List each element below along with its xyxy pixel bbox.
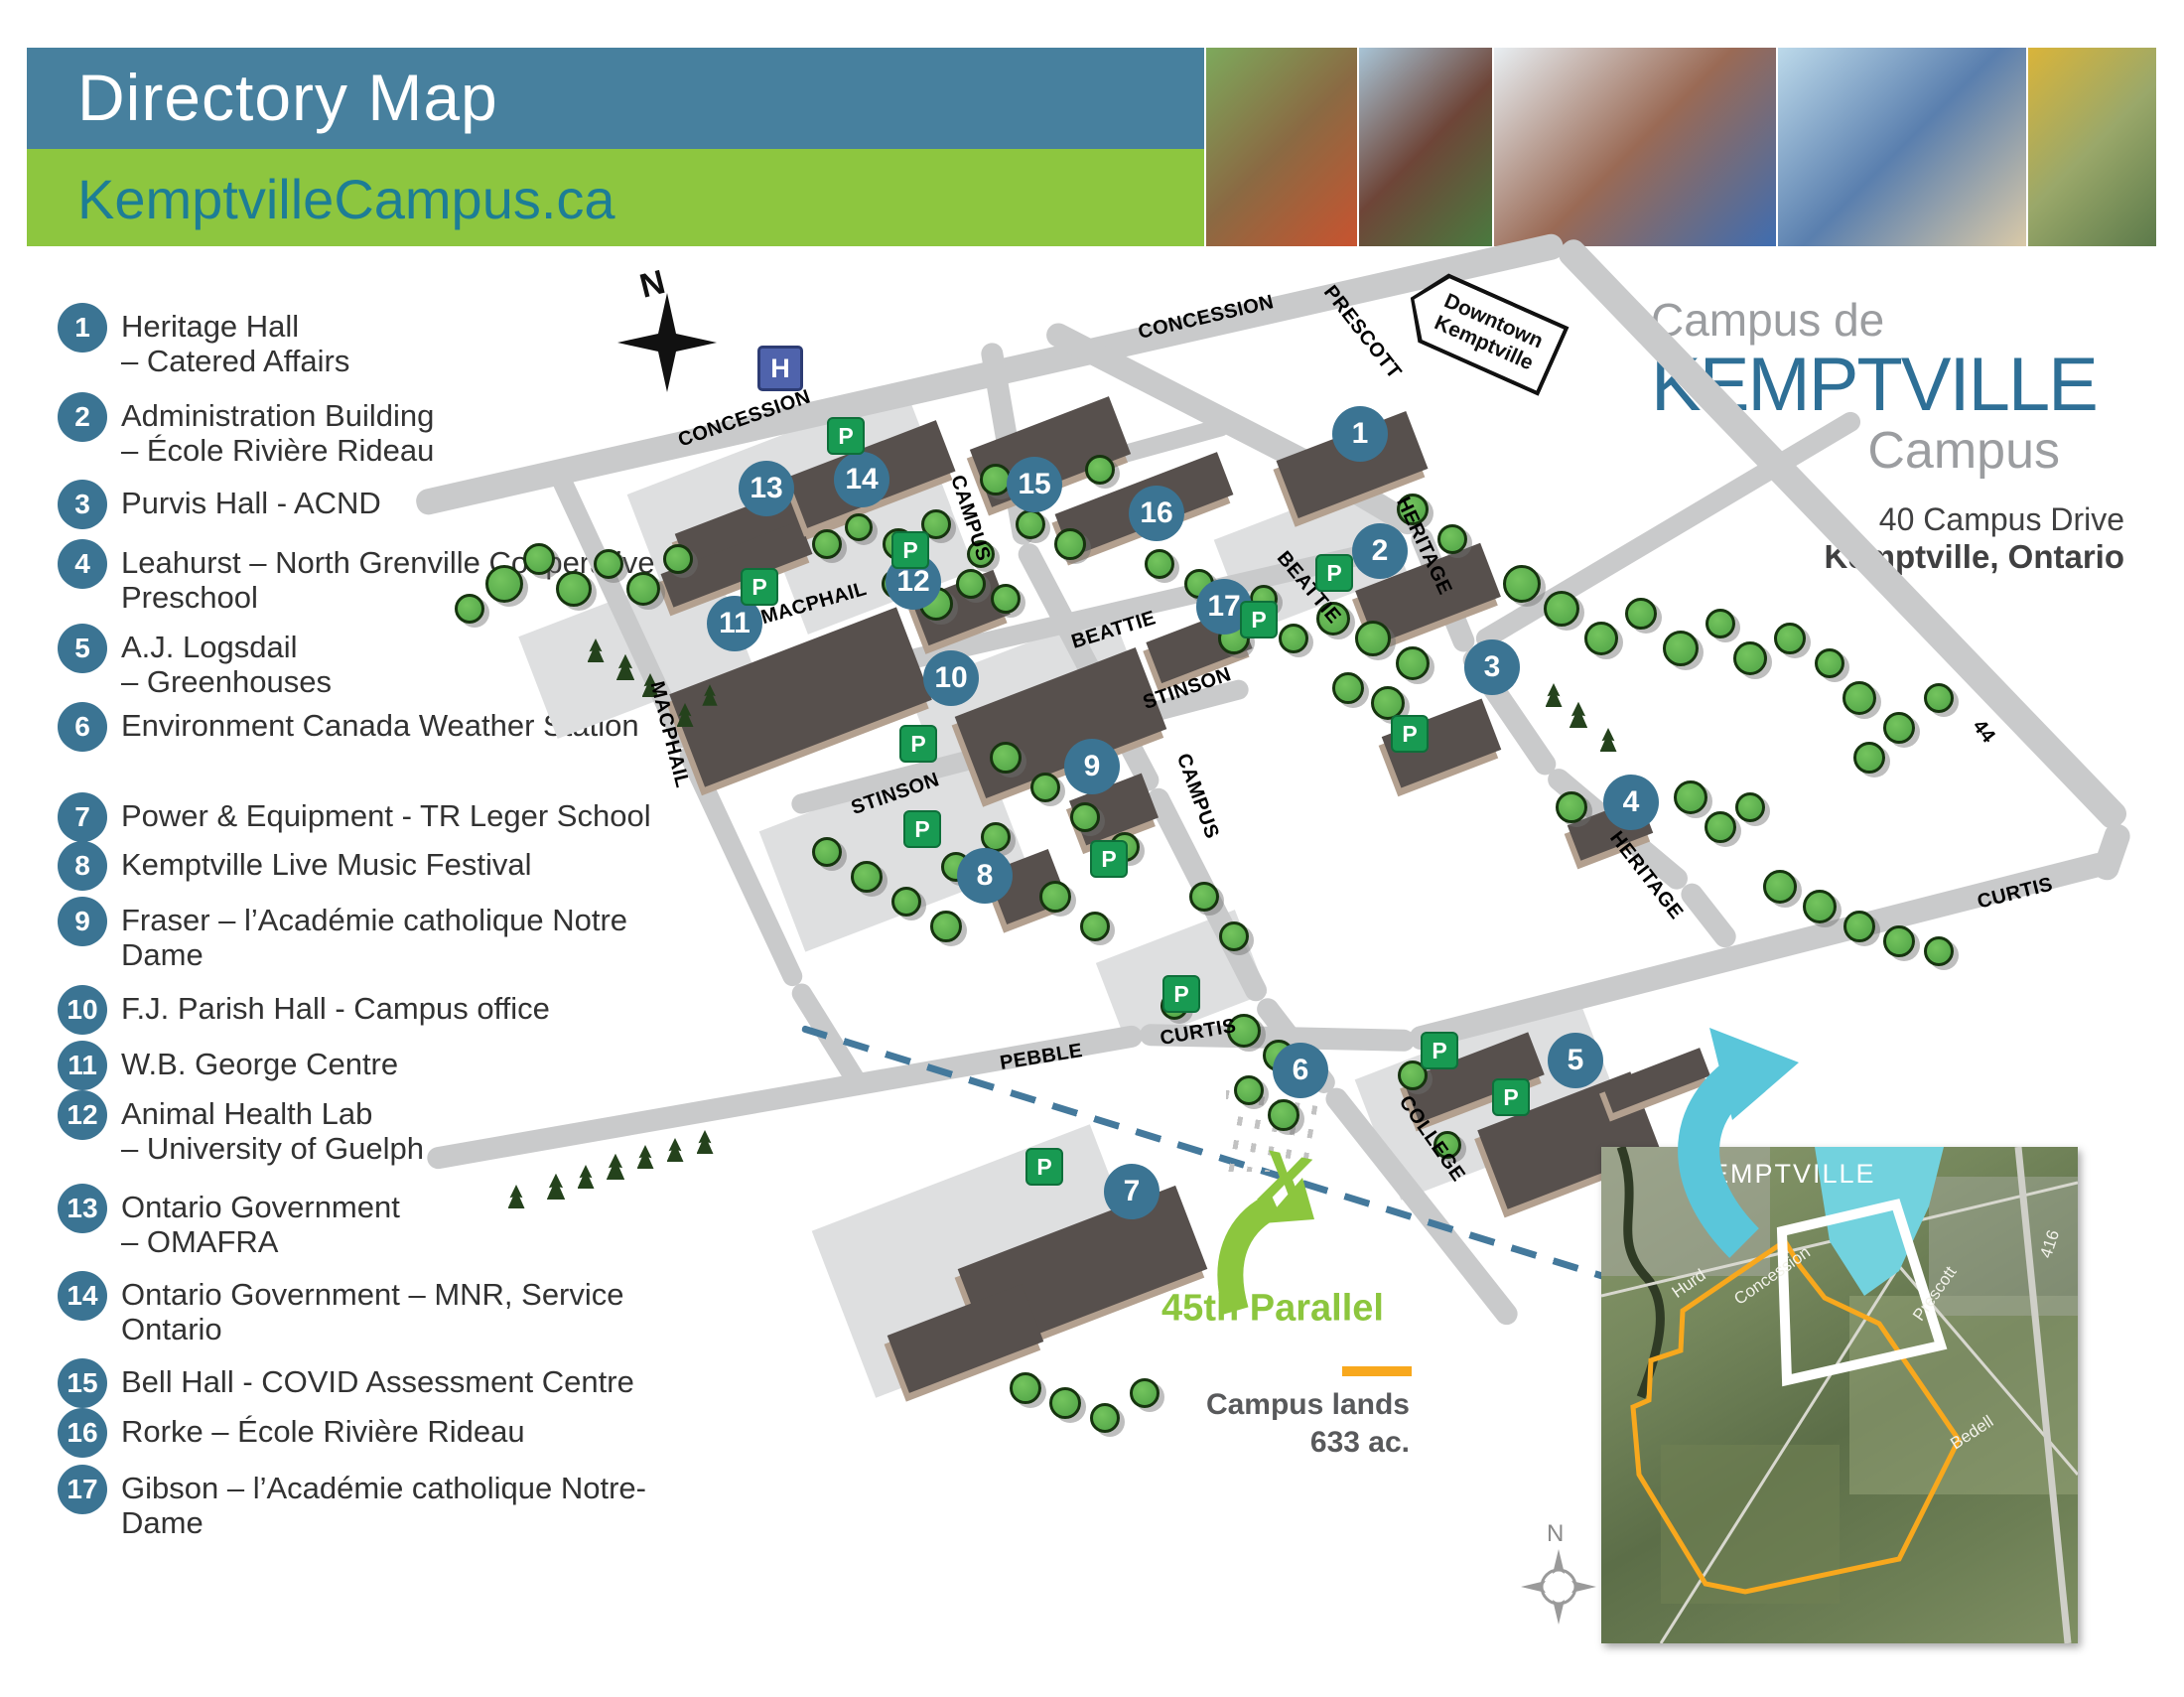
legend-item-8: 8Kemptville Live Music Festival bbox=[58, 841, 531, 891]
inset-compass: N bbox=[1521, 1520, 1596, 1625]
tree-icon bbox=[1080, 912, 1110, 941]
map-marker-2: 2 bbox=[1352, 523, 1408, 579]
pine-tree-icon bbox=[607, 1154, 625, 1180]
legend-item-label: Power & Equipment - TR Leger School bbox=[121, 792, 651, 833]
map-marker-8: 8 bbox=[957, 848, 1013, 904]
campus-lands-swatch bbox=[1342, 1366, 1412, 1376]
tree-icon bbox=[1070, 802, 1100, 832]
map-marker-3: 3 bbox=[1464, 639, 1520, 695]
tree-icon bbox=[991, 584, 1021, 614]
tree-icon bbox=[1663, 631, 1699, 666]
tree-icon bbox=[1843, 911, 1875, 942]
parking-marker: P bbox=[1240, 601, 1278, 638]
legend-item-label: Heritage Hall– Catered Affairs bbox=[121, 303, 349, 378]
tree-icon bbox=[845, 513, 873, 541]
legend-item-label: Animal Health Lab– University of Guelph bbox=[121, 1090, 424, 1166]
legend-item-label: Administration Building– École Rivière R… bbox=[121, 392, 434, 468]
parking-marker: P bbox=[827, 417, 865, 455]
legend-number-badge: 14 bbox=[58, 1271, 107, 1321]
legend-item-label: Bell Hall - COVID Assessment Centre bbox=[121, 1358, 634, 1399]
tree-icon bbox=[891, 887, 921, 917]
parking-marker: P bbox=[891, 531, 929, 569]
svg-text:N: N bbox=[1547, 1520, 1564, 1547]
tree-icon bbox=[1674, 780, 1707, 814]
tree-icon bbox=[956, 569, 986, 599]
tree-icon bbox=[485, 565, 523, 603]
pine-tree-icon bbox=[578, 1165, 595, 1189]
tree-icon bbox=[1049, 1387, 1081, 1419]
tree-icon bbox=[851, 861, 883, 893]
tree-icon bbox=[1815, 648, 1844, 678]
legend-item-5: 5A.J. Logsdail– Greenhouses bbox=[58, 624, 332, 699]
campus-lands-acres: 633 ac. bbox=[1112, 1426, 1410, 1460]
legend-item-label: Gibson – l’Académie catholique Notre-Dam… bbox=[121, 1465, 646, 1540]
building bbox=[1602, 1048, 1710, 1113]
legend-item-7: 7Power & Equipment - TR Leger School bbox=[58, 792, 651, 842]
parking-marker: P bbox=[1162, 975, 1200, 1013]
legend-number-badge: 4 bbox=[58, 539, 107, 589]
tree-icon bbox=[1332, 672, 1364, 704]
legend-number-badge: 13 bbox=[58, 1184, 107, 1233]
legend-number-badge: 7 bbox=[58, 792, 107, 842]
photo-kids-planting bbox=[1206, 48, 1357, 246]
legend-item-label: Purvis Hall - ACND bbox=[121, 480, 381, 520]
legend-number-badge: 5 bbox=[58, 624, 107, 673]
tree-icon bbox=[1883, 925, 1915, 957]
photo-school-building bbox=[1359, 48, 1492, 246]
legend-item-label: Kemptville Live Music Festival bbox=[121, 841, 531, 882]
map-marker-1: 1 bbox=[1332, 406, 1388, 462]
pine-tree-icon bbox=[667, 1138, 684, 1162]
parking-marker: P bbox=[903, 810, 941, 848]
photo-student-beanie bbox=[2028, 48, 2156, 246]
legend-item-2: 2Administration Building– École Rivière … bbox=[58, 392, 434, 468]
legend-item-label: Ontario Government– OMAFRA bbox=[121, 1184, 400, 1259]
tree-icon bbox=[1279, 624, 1308, 653]
legend-item-9: 9Fraser – l’Académie catholique NotreDam… bbox=[58, 897, 627, 972]
parking-marker: P bbox=[1090, 840, 1128, 878]
tree-icon bbox=[1503, 565, 1541, 603]
parking-marker: P bbox=[741, 568, 778, 606]
pine-tree-icon bbox=[637, 1145, 654, 1169]
legend-item-label: Fraser – l’Académie catholique NotreDame bbox=[121, 897, 627, 972]
legend-number-badge: 11 bbox=[58, 1041, 107, 1090]
legend-number-badge: 2 bbox=[58, 392, 107, 442]
brand-line-3: Campus bbox=[1651, 424, 2060, 478]
road-label: 44 bbox=[1968, 716, 1999, 748]
pine-tree-icon bbox=[1546, 683, 1563, 707]
road-segment bbox=[1677, 879, 1740, 952]
tree-icon bbox=[812, 529, 842, 559]
map-marker-9: 9 bbox=[1064, 739, 1120, 794]
pine-tree-icon bbox=[1570, 702, 1588, 728]
pine-tree-icon bbox=[697, 1130, 714, 1154]
legend-item-label: F.J. Parish Hall - Campus office bbox=[121, 985, 550, 1026]
map-marker-7: 7 bbox=[1104, 1164, 1160, 1219]
address-line-1: 40 Campus Drive bbox=[1727, 501, 2124, 538]
tree-icon bbox=[1016, 509, 1045, 539]
legend-number-badge: 15 bbox=[58, 1358, 107, 1408]
tree-icon bbox=[1763, 870, 1797, 904]
parking-marker: P bbox=[1492, 1078, 1530, 1116]
map-marker-14: 14 bbox=[834, 452, 889, 507]
tree-icon bbox=[626, 572, 660, 606]
tree-icon bbox=[1853, 742, 1885, 774]
legend-item-16: 16Rorke – École Rivière Rideau bbox=[58, 1408, 525, 1458]
tree-icon bbox=[1625, 598, 1657, 630]
legend-number-badge: 16 bbox=[58, 1408, 107, 1458]
legend-item-17: 17Gibson – l’Académie catholique Notre-D… bbox=[58, 1465, 646, 1540]
pine-tree-icon bbox=[547, 1174, 566, 1200]
legend-item-12: 12Animal Health Lab– University of Guelp… bbox=[58, 1090, 424, 1166]
pine-tree-icon bbox=[1600, 728, 1617, 752]
tree-icon bbox=[1556, 791, 1587, 823]
tree-icon bbox=[812, 837, 842, 867]
tree-icon bbox=[594, 549, 623, 579]
parking-marker: P bbox=[1421, 1032, 1458, 1069]
parking-marker: P bbox=[1315, 554, 1353, 592]
map-marker-6: 6 bbox=[1273, 1043, 1328, 1098]
parking-marker: P bbox=[899, 725, 937, 763]
legend-item-label: A.J. Logsdail– Greenhouses bbox=[121, 624, 332, 699]
tree-icon bbox=[663, 544, 693, 574]
tree-icon bbox=[1030, 773, 1060, 802]
legend-number-badge: 3 bbox=[58, 480, 107, 529]
map-marker-5: 5 bbox=[1548, 1033, 1603, 1088]
tree-icon bbox=[1437, 524, 1467, 554]
tree-icon bbox=[1189, 882, 1219, 912]
tree-icon bbox=[1039, 881, 1071, 913]
address-line-2: Kemptville, Ontario bbox=[1727, 538, 2124, 576]
tree-icon bbox=[1544, 591, 1579, 627]
hospital-marker: H bbox=[757, 346, 803, 391]
road-segment bbox=[1407, 850, 2113, 1052]
legend-number-badge: 12 bbox=[58, 1090, 107, 1140]
tree-icon bbox=[1924, 683, 1954, 713]
map-marker-4: 4 bbox=[1603, 775, 1659, 830]
legend-item-10: 10F.J. Parish Hall - Campus office bbox=[58, 985, 550, 1035]
tree-icon bbox=[1396, 646, 1430, 680]
pine-tree-icon bbox=[508, 1185, 525, 1208]
tree-icon bbox=[1268, 1099, 1299, 1131]
tree-icon bbox=[1584, 622, 1618, 655]
legend-number-badge: 17 bbox=[58, 1465, 107, 1514]
tree-icon bbox=[1705, 811, 1736, 843]
tree-icon bbox=[1234, 1075, 1264, 1105]
brand-line-1: Campus de bbox=[1651, 293, 2060, 347]
campus-address: 40 Campus Drive Kemptville, Ontario bbox=[1727, 501, 2124, 576]
45th-parallel-label: 45th Parallel bbox=[1161, 1288, 1384, 1331]
tree-icon bbox=[523, 543, 555, 575]
tree-icon bbox=[990, 742, 1022, 774]
map-compass: N bbox=[617, 263, 717, 392]
tree-icon bbox=[1010, 1372, 1041, 1404]
campus-lands-label: Campus lands bbox=[1112, 1388, 1410, 1422]
directory-map-page: Directory Map KemptvilleCampus.ca Campus… bbox=[0, 0, 2184, 1697]
tree-icon bbox=[1733, 641, 1767, 675]
tree-icon bbox=[1735, 792, 1765, 822]
tree-icon bbox=[1054, 528, 1086, 560]
inset-city-label: KEMPTVILLE bbox=[1691, 1159, 1876, 1190]
tree-icon bbox=[1085, 455, 1115, 485]
map-marker-15: 15 bbox=[1007, 457, 1062, 512]
tree-icon bbox=[556, 571, 592, 607]
tree-icon bbox=[1774, 623, 1806, 654]
legend-item-label: W.B. George Centre bbox=[121, 1041, 398, 1081]
map-marker-10: 10 bbox=[923, 650, 979, 706]
legend-item-15: 15Bell Hall - COVID Assessment Centre bbox=[58, 1358, 634, 1408]
tree-icon bbox=[930, 911, 962, 942]
page-title: Directory Map bbox=[77, 60, 498, 135]
road-label: PEBBLE bbox=[999, 1040, 1085, 1075]
photo-students-group bbox=[1778, 48, 2026, 246]
site-url: KemptvilleCampus.ca bbox=[77, 167, 615, 231]
campus-lands-legend: Campus lands 633 ac. bbox=[1112, 1388, 1410, 1460]
satellite-inset-map: KEMPTVILLE HurdConcessionPrescottBedell4… bbox=[1601, 1147, 2078, 1643]
svg-text:N: N bbox=[636, 263, 669, 306]
map-marker-13: 13 bbox=[739, 461, 794, 516]
satellite-inset-art bbox=[1601, 1147, 2078, 1643]
legend-item-label: Ontario Government – MNR, ServiceOntario bbox=[121, 1271, 624, 1346]
legend-item-11: 11W.B. George Centre bbox=[58, 1041, 398, 1090]
map-marker-16: 16 bbox=[1129, 486, 1184, 541]
legend-item-1: 1Heritage Hall– Catered Affairs bbox=[58, 303, 349, 378]
tree-icon bbox=[1803, 890, 1837, 923]
legend-number-badge: 10 bbox=[58, 985, 107, 1035]
tree-icon bbox=[1843, 681, 1876, 715]
legend-item-14: 14Ontario Government – MNR, ServiceOntar… bbox=[58, 1271, 624, 1346]
legend-number-badge: 9 bbox=[58, 897, 107, 946]
legend-item-13: 13Ontario Government– OMAFRA bbox=[58, 1184, 400, 1259]
photo-student-glasses bbox=[1494, 48, 1776, 246]
legend-item-3: 3Purvis Hall - ACND bbox=[58, 480, 381, 529]
tree-icon bbox=[1883, 712, 1915, 744]
legend-number-badge: 1 bbox=[58, 303, 107, 353]
tree-icon bbox=[1219, 921, 1249, 951]
legend-item-label: Rorke – École Rivière Rideau bbox=[121, 1408, 525, 1449]
legend-number-badge: 6 bbox=[58, 702, 107, 752]
tree-icon bbox=[1706, 609, 1735, 638]
tree-icon bbox=[1924, 936, 1954, 966]
tree-icon bbox=[455, 594, 484, 624]
parking-marker: P bbox=[1025, 1148, 1063, 1186]
tree-icon bbox=[1355, 621, 1391, 656]
legend-number-badge: 8 bbox=[58, 841, 107, 891]
parking-marker: P bbox=[1391, 715, 1429, 753]
tree-icon bbox=[1145, 549, 1174, 579]
